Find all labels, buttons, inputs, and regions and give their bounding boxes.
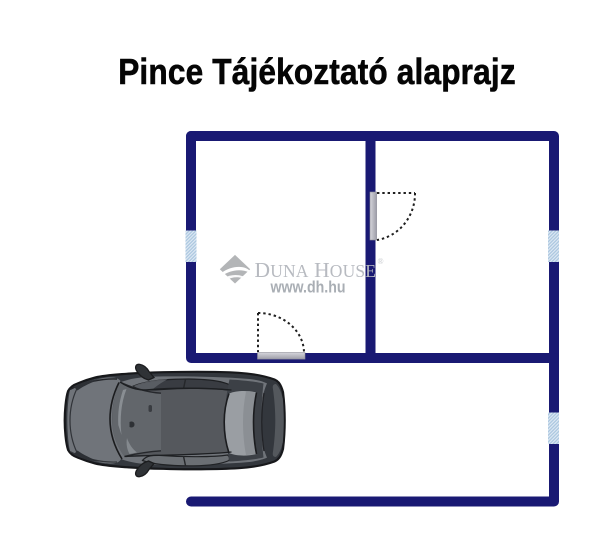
svg-text:®: ®	[378, 257, 384, 266]
svg-text:www.dh.hu: www.dh.hu	[270, 277, 346, 296]
